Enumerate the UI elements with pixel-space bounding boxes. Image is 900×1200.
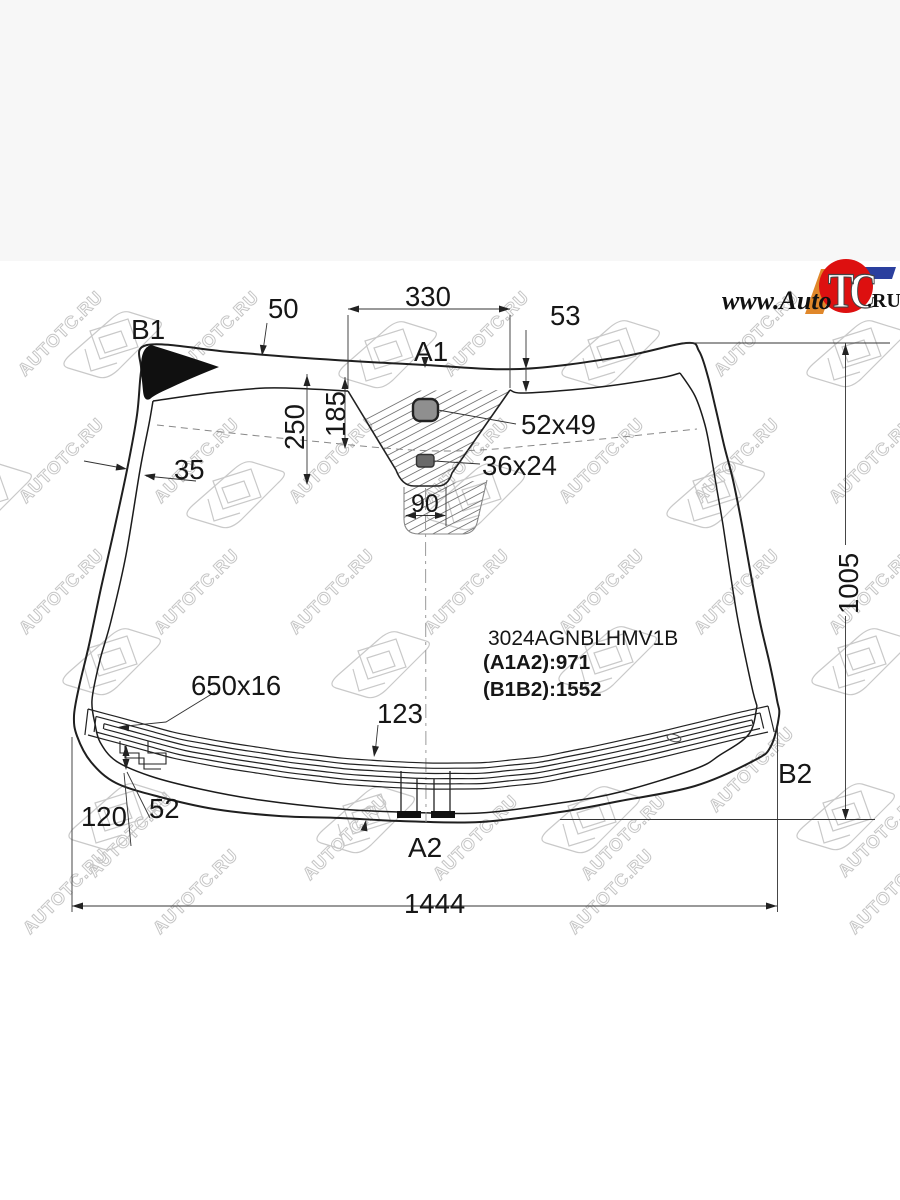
svg-text:1444: 1444	[404, 888, 465, 919]
svg-text:52: 52	[149, 793, 180, 824]
svg-text:50: 50	[268, 293, 299, 324]
svg-text:(B1B2):1552: (B1B2):1552	[483, 678, 602, 701]
svg-text:90: 90	[411, 490, 439, 518]
svg-text:330: 330	[405, 281, 451, 312]
svg-text:1005: 1005	[833, 553, 864, 614]
svg-text:185: 185	[320, 391, 351, 437]
svg-text:123: 123	[377, 698, 423, 729]
svg-text:53: 53	[550, 300, 581, 331]
svg-text:250: 250	[279, 404, 310, 450]
svg-text:B1: B1	[131, 314, 165, 345]
svg-text:650x16: 650x16	[191, 670, 281, 701]
svg-text:B2: B2	[778, 758, 812, 789]
svg-text:.RU: .RU	[867, 290, 900, 312]
svg-text:3024AGNBLHMV1B: 3024AGNBLHMV1B	[488, 627, 678, 650]
svg-text:35: 35	[174, 454, 205, 485]
svg-text:(A1A2):971: (A1A2):971	[483, 651, 590, 674]
svg-text:36x24: 36x24	[482, 450, 557, 481]
svg-text:www.Auto: www.Auto	[722, 286, 832, 315]
svg-text:A1: A1	[414, 336, 448, 367]
svg-text:120: 120	[81, 801, 127, 832]
svg-text:52x49: 52x49	[521, 409, 596, 440]
svg-text:A2: A2	[408, 832, 442, 863]
